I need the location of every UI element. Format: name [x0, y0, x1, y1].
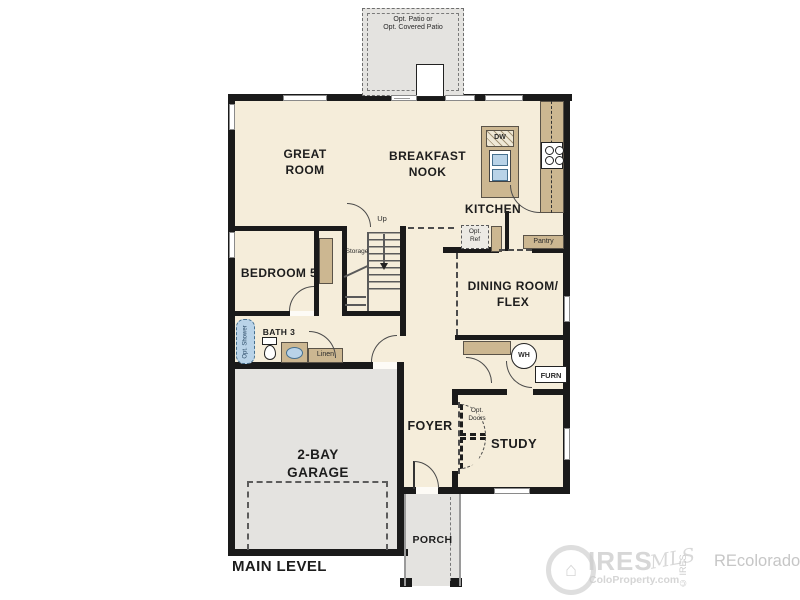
study-wall-left-bottom-stub — [452, 471, 458, 494]
watermark-copyright: © IRES — [678, 546, 688, 588]
patio-label-line2: Opt. Covered Patio — [383, 24, 443, 31]
study-label: STUDY — [485, 436, 543, 453]
optional-doors-label: Opt. Doors — [462, 407, 492, 423]
breakfast-nook-label: BREAKFAST NOOK — [380, 149, 475, 180]
sliding-door — [391, 95, 417, 101]
bath3-label: BATH 3 — [256, 327, 302, 338]
optional-refrigerator-label: Opt. Ref — [461, 228, 489, 244]
great-room-wall-bottom — [228, 226, 346, 231]
garage-wall-bottom — [228, 549, 408, 556]
floor-plan-canvas: Opt. Patio or Opt. Covered Patio — [0, 0, 800, 600]
foyer-label: FOYER — [406, 418, 454, 434]
bedroom5-wall-bottom — [228, 311, 290, 316]
linen-label: Linen — [308, 351, 343, 359]
breakfast-nook-line2: NOOK — [409, 165, 447, 179]
kitchen-label: KITCHEN — [464, 202, 522, 218]
garage-door-outline — [247, 481, 388, 550]
stair-landing-line — [345, 296, 366, 298]
great-room-line2: ROOM — [286, 163, 325, 177]
garage-line1: 2-BAY — [297, 447, 338, 462]
window — [283, 95, 327, 101]
stair-wall-left — [342, 226, 347, 316]
window — [485, 95, 523, 101]
dining-room-line2: FLEX — [497, 295, 529, 309]
dining-dashed-opening — [456, 253, 458, 335]
patio-label: Opt. Patio or Opt. Covered Patio — [366, 16, 460, 33]
garage-wall-right — [397, 362, 404, 556]
patio-label-line1: Opt. Patio or — [393, 16, 432, 23]
stair-direction-arrow-shaft — [383, 234, 385, 264]
stair-direction-arrow-head — [380, 263, 388, 270]
house-icon: ⌂ — [565, 559, 577, 582]
opt-ref-line2: Ref — [470, 236, 480, 243]
window — [229, 232, 235, 258]
window — [445, 95, 475, 101]
porch-post — [400, 578, 412, 587]
window — [564, 428, 570, 460]
level-title: MAIN LEVEL — [232, 557, 372, 577]
exterior-wall-left — [228, 94, 235, 556]
garage-entry-opening — [373, 362, 397, 369]
stove-burners — [543, 144, 561, 167]
sliding-door-leaf — [394, 98, 410, 99]
dining-wall-bottom — [455, 335, 570, 340]
storage-label: Storage — [342, 248, 372, 256]
garage-label: 2-BAY GARAGE — [258, 446, 378, 481]
kitchen-dining-dashed-opening — [499, 249, 532, 251]
fireplace-chimney — [416, 64, 444, 97]
vanity-sink — [286, 347, 303, 359]
dining-room-label: DINING ROOM/ FLEX — [461, 279, 565, 310]
toilet-tank — [262, 337, 277, 345]
opt-ref-line1: Opt. — [469, 228, 481, 235]
opt-doors-line2: Doors — [468, 415, 485, 422]
optional-shower-label: Opt. Shower — [243, 325, 249, 358]
pantry-label: Pantry — [523, 238, 564, 246]
bedroom5-door-opening — [290, 311, 314, 316]
hall-dashed-opening — [408, 227, 454, 229]
sink-basin — [492, 154, 508, 166]
stair-divider — [367, 232, 369, 311]
furnace-label: FURN — [535, 371, 567, 380]
coat-closet — [463, 341, 511, 355]
bedroom5-label: BEDROOM 5 — [234, 266, 324, 282]
great-room-line1: GREAT — [283, 147, 326, 161]
window — [229, 104, 235, 130]
stair-landing-line — [345, 304, 366, 306]
porch-label: PORCH — [404, 534, 461, 548]
water-heater-label: WH — [511, 352, 537, 360]
stair-wall-bottom — [342, 311, 406, 316]
dining-room-line1: DINING ROOM/ — [468, 279, 559, 293]
sink-basin — [492, 169, 508, 181]
watermark-brand: IRES — [588, 546, 653, 577]
hall-wall-center — [400, 226, 406, 336]
great-room-label: GREAT ROOM — [265, 147, 345, 178]
front-door-opening — [416, 487, 438, 494]
dishwasher-label: DW — [486, 134, 514, 142]
garage-line2: GARAGE — [287, 465, 349, 480]
watermark-mls-script: MLS — [648, 544, 696, 573]
optional-shower-tub: Opt. Shower — [236, 319, 255, 364]
breakfast-nook-line1: BREAKFAST — [389, 149, 466, 163]
watermark-site: ColoProperty.com — [589, 574, 679, 586]
utility-wall-bottom-left — [452, 389, 507, 395]
toilet-bowl — [264, 345, 276, 360]
utility-wall-bottom-right — [533, 389, 570, 395]
stairs-up-label: Up — [370, 214, 394, 223]
stair-treads — [369, 232, 400, 290]
watermark-recolorado: REcolorado — [714, 552, 800, 571]
window — [494, 488, 530, 494]
opt-doors-line1: Opt. — [471, 407, 483, 414]
